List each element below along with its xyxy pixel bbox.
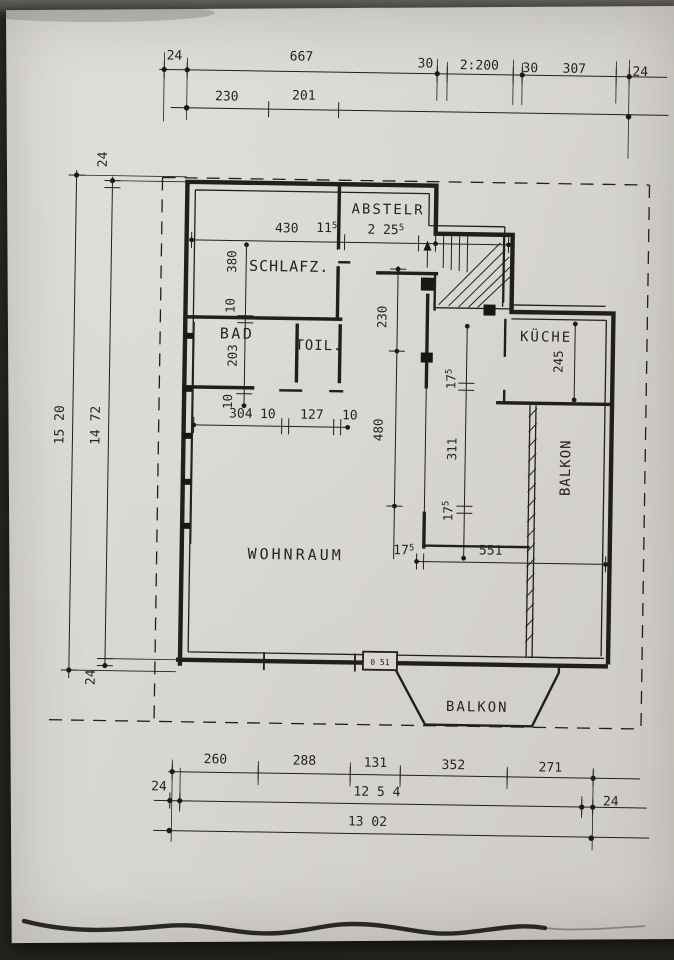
dim-top-24-left: 24 <box>167 48 183 63</box>
dim-bottom-24-left: 24 <box>151 779 167 794</box>
dim-380: 380 <box>224 250 239 273</box>
dim-bottom-1302: 13 02 <box>348 814 387 830</box>
dim-top-307: 307 <box>562 62 586 77</box>
dim-bottom-288: 288 <box>293 754 317 769</box>
dim-10c: 10 <box>260 407 276 422</box>
dim-bottom-24-right: 24 <box>603 794 619 809</box>
floor-plan-drawing: 24 667 30 2:200 30 307 24 230 201 24 15 … <box>0 0 674 960</box>
room-labels: ABSTELR SCHLAFZ. BAD TOIL. KÜCHE WOHNRAU… <box>216 199 574 567</box>
dim-left-24-top: 24 <box>96 151 111 167</box>
dim-chain-bottom: 260 288 131 352 271 24 12 5 4 24 13 02 <box>150 751 650 851</box>
dim-top-30b: 30 <box>522 61 538 76</box>
room-label-schlafzimmer: SCHLAFZ. <box>249 257 330 276</box>
dim-10a: 10 <box>222 298 237 313</box>
dim-top-30a: 30 <box>417 56 433 71</box>
dim-top-667: 667 <box>290 49 314 64</box>
photo-of-floor-plan: { "colors": { "paper": "#d9d6d2", "backg… <box>0 0 674 960</box>
dim-2255: 2 255 <box>367 223 404 239</box>
dim-480: 480 <box>370 418 385 441</box>
dim-311: 311 <box>444 438 459 461</box>
dim-430: 430 <box>275 221 299 236</box>
room-label-balkon-south: BALKON <box>446 699 509 716</box>
dim-203: 203 <box>225 344 240 367</box>
dim-551: 551 <box>479 543 503 558</box>
balcony-east: BALKON <box>525 405 608 658</box>
balcony-door-mark: 0 51 <box>370 658 390 667</box>
room-label-bad: BAD <box>220 324 255 343</box>
dim-bottom-352: 352 <box>442 758 466 773</box>
dim-left-1520: 15 20 <box>52 405 68 444</box>
door-marks <box>420 277 496 363</box>
dim-127: 127 <box>300 408 324 423</box>
dim-chain-top-secondary: 230 201 <box>171 87 669 124</box>
staircase <box>423 236 513 308</box>
dim-115: 115 <box>316 221 337 236</box>
room-label-balkon-east: BALKON <box>558 439 575 496</box>
paper-curl-shadow <box>24 921 545 934</box>
paper-edge-shadow <box>0 4 215 22</box>
paper-curl-shadow-tail <box>545 926 645 929</box>
dim-top-201: 201 <box>292 88 316 103</box>
room-label-wohnraum: WOHNRAUM <box>247 545 344 565</box>
window-marks <box>179 322 360 672</box>
dim-bottom-131: 131 <box>364 756 388 771</box>
dim-bottom-271: 271 <box>538 760 562 775</box>
dim-175b: 175 <box>440 501 455 522</box>
dim-bottom-1254: 12 5 4 <box>353 784 400 800</box>
room-label-toilette: TOIL. <box>295 338 342 355</box>
dim-304: 304 <box>229 406 253 421</box>
dim-chain-left: 24 15 20 14 72 24 <box>49 151 187 687</box>
dim-bottom-260: 260 <box>204 752 228 767</box>
room-label-abstellraum: ABSTELR <box>351 201 424 218</box>
dim-230: 230 <box>374 305 389 328</box>
dim-left-24-bottom: 24 <box>84 669 99 685</box>
dim-10d: 10 <box>342 408 358 423</box>
dim-top-2200: 2:200 <box>460 58 499 74</box>
dim-top-24-right: 24 <box>632 65 648 80</box>
dim-175a: 175 <box>443 369 458 390</box>
dim-175c: 175 <box>393 543 414 558</box>
dim-245: 245 <box>551 350 566 373</box>
dim-top-230: 230 <box>215 89 239 104</box>
room-label-kueche: KÜCHE <box>520 327 572 346</box>
dim-left-1472: 14 72 <box>88 406 104 445</box>
